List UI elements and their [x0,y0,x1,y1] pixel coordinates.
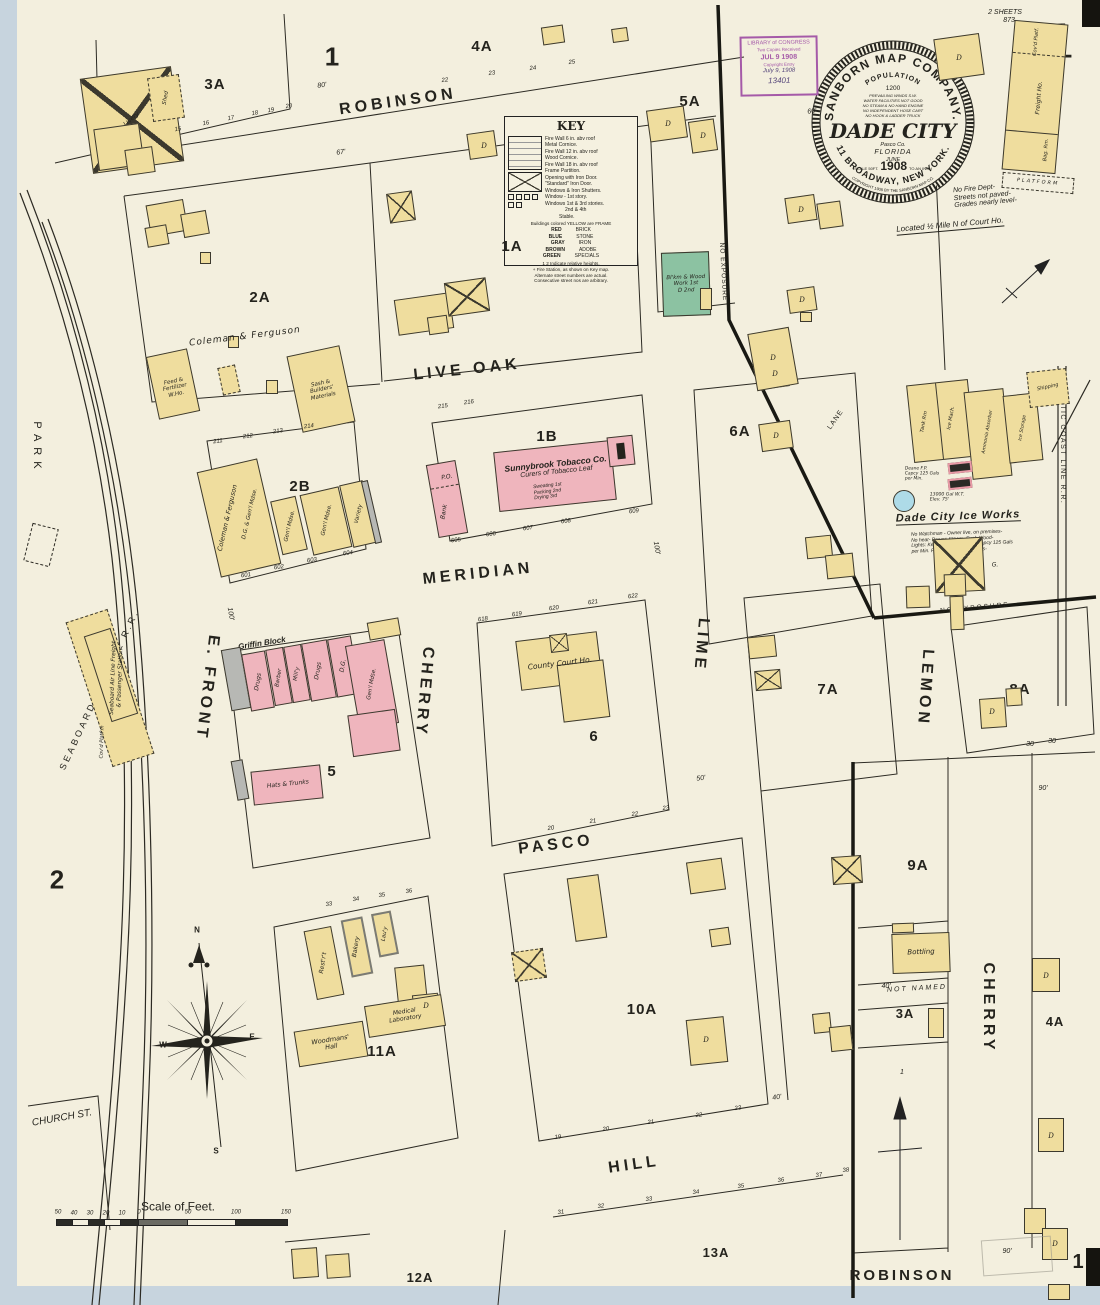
building [180,210,210,238]
dwelling-label: D [1052,1240,1058,1248]
street-number: 216 [464,399,475,407]
water-tank-note: 13000 Gal W.T.Elev. 75' [930,493,965,504]
block-outline [694,373,872,644]
library-of-congress-stamp: LIBRARY of CONGRESS Two Copies Received … [739,35,818,96]
street-number: 211 [213,438,223,446]
dimension: 80' [317,82,327,91]
building [800,312,812,322]
block-number: 10A [627,1002,658,1019]
street-label-park: PARK [31,421,43,474]
street-number: 19 [267,107,275,115]
street-number: 16 [202,120,210,128]
street-number: 35 [737,1183,745,1190]
scale-label: 100 [231,1210,241,1217]
street-label-cherry-east: CHERRY [979,963,997,1054]
block-number: 9A [907,858,928,875]
street-number: 20 [547,825,555,832]
block-number: 7A [817,682,838,699]
block-number: 3A [896,1007,915,1021]
seal-population-value: 1200 [886,85,901,92]
building [347,709,400,757]
street-number: 604 [343,550,354,558]
north-arrow-upper [1002,260,1049,303]
dimension: 60' [807,108,817,117]
dimension: 30 [1048,738,1056,746]
park-siding [24,523,58,566]
street-number: 619 [512,611,523,619]
dwelling [686,858,726,895]
street-number: 21 [647,1119,655,1126]
street-number: 23 [662,805,670,812]
dwelling-label: D [770,354,776,362]
street-number: 214 [304,423,315,431]
street-number: 609 [629,508,640,516]
scale-label: 50 [185,1210,192,1217]
building [906,586,931,609]
block-number: 2A [249,290,270,307]
street-number: 23 [488,70,496,77]
seal-year: 1908 [880,159,907,173]
street-number: 21 [589,818,597,825]
dimension: 50' [696,775,706,784]
street-number: 22 [631,811,639,818]
building [200,252,211,264]
key-footnote: Consecutive street nos are arbitrary. [508,278,634,284]
building [444,277,490,317]
building [709,927,731,948]
dwelling-label: D [1043,972,1049,980]
building [291,1247,319,1279]
dwelling-label: D [481,142,487,150]
street-number: 33 [325,901,333,909]
block-number: 6 [589,729,598,746]
building [325,1253,351,1279]
street-number: 36 [777,1177,785,1184]
seal-state: FLORIDA [874,149,911,156]
street-number: 608 [561,518,572,526]
street-number: 212 [243,433,254,441]
scale-bar-title: Scale of Feet. [141,1200,215,1213]
street-number: 622 [628,593,639,601]
street-number: 34 [352,896,360,904]
key-diagram [508,136,542,221]
station-label: Seaboard Air Line Freight& Passenger Sta… [109,641,125,715]
building [944,574,967,597]
covered-platform-label: Cov'd Platf'm [100,725,107,758]
compass-east-label: E [249,1034,254,1043]
dimension: 30 [1026,741,1034,749]
scale-label: 30 [87,1211,94,1218]
scan-corner-top-right [1082,0,1100,27]
building [124,146,155,176]
street-number: 19 [554,1134,562,1141]
seal-city: DADE CITY [829,119,959,143]
key-line: Stable. [545,214,634,221]
dwelling-label: D [956,54,962,62]
street-edge [853,752,1095,1253]
key-title: KEY [508,119,634,135]
street-number: 34 [692,1189,700,1196]
building [829,1025,853,1052]
street-number: 32 [597,1203,605,1210]
street-number: 36 [405,888,413,896]
street-number: 18 [251,110,259,118]
building [892,923,914,934]
building [949,596,964,630]
building-label: G. [992,563,999,570]
street-number: 621 [588,599,599,607]
scale-label: 10 [119,1211,126,1218]
dwelling-label: D [1048,1132,1054,1140]
building [747,635,777,660]
block-number: 5 [327,764,336,781]
street-number: 31 [557,1209,565,1216]
building [511,948,547,982]
dimension: 1 [900,1069,904,1077]
street-number: 602 [274,564,285,572]
dwelling-label: D [798,206,804,214]
sheet-count-note: 2 SHEETS [988,9,1022,17]
building [541,25,565,46]
dwelling-label: D [773,432,779,440]
block-number: 4A [1046,1015,1065,1029]
block-number: 1B [536,429,557,446]
street-number: 24 [529,65,537,72]
block-number: 13A [703,1246,730,1260]
street-number: 35 [378,892,386,900]
block-number: 6A [729,424,750,441]
building [1048,1284,1070,1300]
street-number: 25 [568,59,576,66]
street-number: 23 [734,1105,742,1112]
street-number: 605 [451,537,462,545]
north-arrow-street [878,1098,922,1240]
dwelling-label: D [799,296,805,304]
building [1005,687,1022,706]
dwelling-label: D [989,708,995,716]
adjacent-sheet-number: 2 [50,866,64,895]
scale-label: 50 [55,1210,62,1217]
dwelling-label: D [703,1036,709,1044]
sunnybrook-annex [607,435,636,468]
dwelling-label: D [665,120,671,128]
water-tank [893,490,915,512]
street-number: 215 [438,403,449,411]
building [831,855,863,885]
dimension: 90' [1038,785,1047,793]
street-label-robinson-bottom: ROBINSON [850,1268,955,1285]
scale-label: 150 [281,1210,291,1217]
street-number: 38 [842,1167,850,1174]
scale-bar [56,1219,288,1226]
street-number: 213 [273,428,284,436]
street-number: 37 [815,1172,823,1179]
street-number: 33 [645,1196,653,1203]
block-number: 12A [407,1271,434,1285]
dimension: 40' [881,983,890,991]
scale-label: 40 [71,1211,78,1218]
building [928,1008,944,1038]
compass-west-label: W [159,1042,167,1051]
scale-label: 0 [137,1210,140,1217]
compass-rose-icon [125,915,295,1165]
sheet-number-bottom-right: 1 [1072,1251,1083,1273]
scan-corner-bottom-right [1086,1248,1100,1286]
street-number: 620 [549,605,560,613]
map-key-legend: KEY Fire Wall 6 in. abv roof Metal Corni… [504,116,638,266]
dimension: 40' [772,1094,782,1103]
building [611,27,629,43]
key-color-meaning: SPECIALS [575,253,599,260]
street-number: 20 [602,1126,610,1133]
adjacent-sheet-number: 1 [325,43,339,72]
street-number: 20 [285,103,293,111]
street-edge [498,1175,843,1305]
compass-south-label: S [213,1148,218,1157]
block-number: 1A [501,239,522,256]
dwelling-label: D [423,1002,429,1010]
courthouse-cupola [549,633,569,653]
street-number: 606 [486,531,497,539]
key-color-name: GREEN [543,253,561,260]
street-number: 607 [523,525,534,533]
bottling-label: Bottling [907,948,935,957]
seal-county: Pasco Co. [880,142,905,148]
scale-label: 20 [103,1211,110,1218]
block-number: 11A [367,1044,397,1061]
street-number: 601 [241,572,252,580]
block-number: 3A [204,77,225,94]
block-number: 4A [471,39,492,56]
sunnybrook-floors: Sweating 1stPacking 2ndDrying 3rd [533,482,563,501]
building [754,669,782,691]
building [144,224,169,248]
street-number: 22 [441,77,449,84]
fire-pump-note: Deane F.P.Capcy 125 Galsper Min. [905,466,939,481]
dwelling-label: D [700,132,706,140]
dimension: 67' [336,149,346,158]
faint-stamp [981,1236,1053,1277]
stable-building [386,190,416,223]
building [266,380,278,394]
street-number: 17 [227,115,235,123]
street-number: 618 [478,616,489,624]
stamp-handwriting: 13401 [742,75,816,87]
building [700,288,712,310]
dwelling-label: D [772,370,778,378]
courthouse-annex [557,659,611,722]
compass-north-label: N [194,927,200,936]
street-number: 22 [695,1112,703,1119]
street-number: 603 [307,557,318,565]
street-number: 15 [174,126,182,134]
block-outline [504,838,768,1141]
building [825,553,855,580]
building [427,315,449,336]
seal-note: NO HOOK & LADDER TRUCK [866,113,921,118]
dwelling [816,200,843,229]
